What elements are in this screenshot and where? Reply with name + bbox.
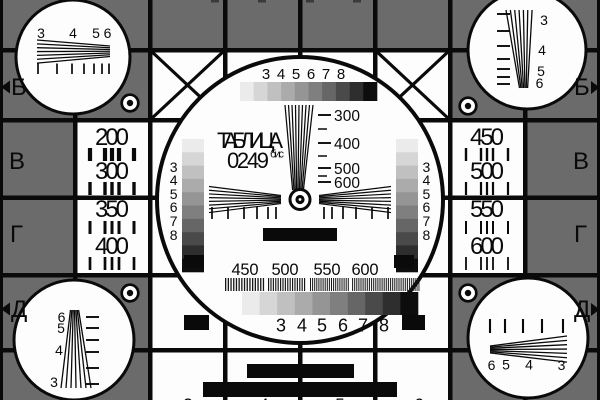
vertical-wedge-scale-labels: 300 400 500 600: [334, 108, 360, 192]
resolution-value: 400: [95, 233, 129, 260]
grayscale-staircase-left: [182, 139, 204, 272]
wedge-label: 3: [558, 357, 566, 373]
card-number: 0249: [227, 148, 269, 173]
row-letter-right-v: В: [573, 148, 589, 175]
wedge-label: 4: [55, 342, 63, 358]
wedge-label: 6: [488, 357, 496, 373]
wedge-label: 6: [104, 25, 112, 41]
cropped-digit: 6: [414, 395, 423, 400]
grayscale-staircase-right: [396, 139, 418, 272]
resolution-value: 600: [470, 233, 504, 260]
vertical-grayscale-labels-left: 3 4 5 6 7 8: [170, 159, 178, 243]
step-label: 7: [358, 316, 368, 336]
frequency-label: 500: [272, 261, 299, 279]
step-label: 6: [338, 316, 348, 336]
row-letter-right-g: Г: [574, 221, 587, 248]
resolution-value: 350: [95, 196, 129, 223]
step-label: 8: [337, 66, 345, 83]
step-label: 8: [170, 227, 178, 243]
row-letter-right-b: Б: [574, 74, 590, 101]
row-letter-left-b: Б: [11, 74, 27, 101]
frequency-label: 600: [334, 175, 360, 192]
frequency-label: 550: [314, 261, 341, 279]
corner-circle-bottom-right: [468, 278, 588, 398]
frequency-label: 400: [334, 136, 360, 153]
step-label: 5: [317, 316, 327, 336]
bottom-black-bar-lower: [203, 382, 397, 397]
frequency-label: 300: [334, 108, 360, 125]
registration-square: [394, 255, 414, 268]
row-letter-left-g: Г: [10, 221, 23, 248]
corner-circle-bottom-left: [14, 280, 134, 400]
registration-square: [184, 255, 204, 268]
cropped-digit: 3: [183, 395, 192, 400]
wedge-label: 3: [50, 374, 58, 390]
wedge-label: 4: [538, 42, 546, 58]
resolution-value: 300: [95, 158, 129, 185]
step-label: 8: [423, 227, 431, 243]
cropped-digit: 5: [335, 395, 344, 400]
step-label: 7: [322, 66, 330, 83]
frequency-label: 450: [232, 261, 259, 279]
bottom-black-bar-upper: [247, 364, 354, 378]
frequency-label: 600: [352, 261, 379, 279]
wedge-label: 6: [536, 75, 544, 91]
step-label: 6: [307, 66, 315, 83]
test-card-canvas: Б В Г Д Б В Г Д 200 300 350 400 450 500 …: [0, 0, 600, 400]
registration-square: [402, 315, 425, 330]
step-label: 4: [297, 316, 307, 336]
resolution-value: 550: [470, 196, 504, 223]
resolution-value: 200: [95, 124, 129, 151]
step-label: 3: [276, 316, 286, 336]
resolution-value: 450: [470, 124, 504, 151]
row-letter-left-d: Д: [11, 296, 27, 323]
vertical-grayscale-labels-right: 3 4 5 6 7 8: [423, 159, 431, 243]
wedge-label: 3: [37, 25, 45, 41]
row-letter-left-v: В: [9, 148, 25, 175]
wedge-label: 5: [92, 25, 100, 41]
step-label: 5: [292, 66, 300, 83]
wedge-label: 4: [69, 25, 77, 41]
grayscale-staircase-bottom: [242, 292, 418, 315]
resolution-value: 500: [470, 158, 504, 185]
wedge-label: 5: [502, 357, 510, 373]
grayscale-staircase-top: [240, 82, 377, 101]
step-label: 3: [262, 66, 270, 83]
tv-test-card: Б В Г Д Б В Г Д 200 300 350 400 450 500 …: [0, 0, 600, 400]
wedge-label: 4: [525, 357, 533, 373]
row-letter-right-d: Д: [574, 296, 590, 323]
registration-square: [184, 315, 209, 330]
center-black-bar: [263, 228, 337, 241]
step-label: 4: [277, 66, 285, 83]
step-label: 8: [379, 316, 389, 336]
wedge-label: 5: [57, 320, 65, 336]
wedge-label: 3: [540, 12, 548, 28]
card-number-suffix: бис: [270, 149, 285, 161]
cropped-digit: 4: [259, 395, 268, 400]
